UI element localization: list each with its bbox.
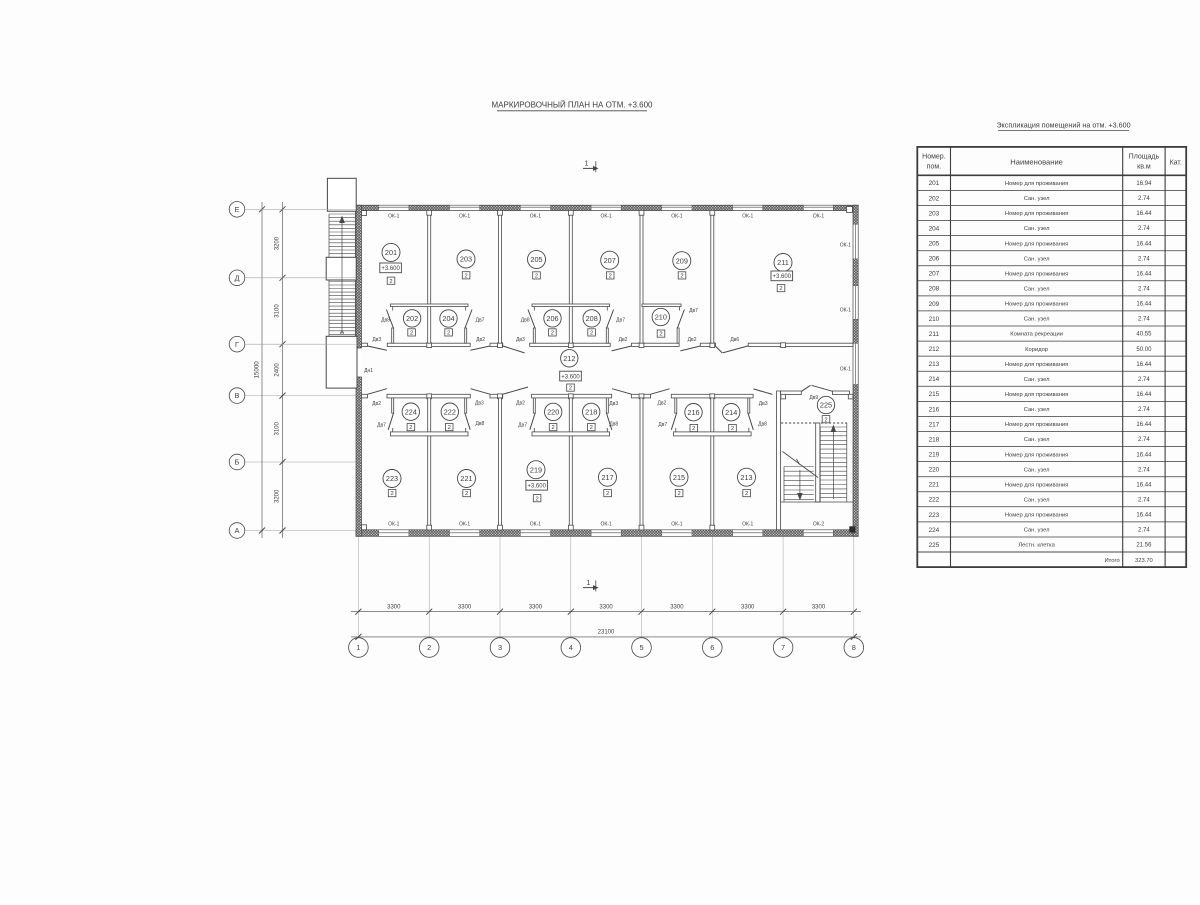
svg-text:208: 208 — [929, 286, 940, 293]
svg-text:40.55: 40.55 — [1136, 332, 1152, 338]
svg-text:215: 215 — [929, 391, 940, 398]
svg-text:202: 202 — [406, 314, 418, 323]
svg-text:5: 5 — [639, 643, 643, 652]
svg-text:Номер для проживания: Номер для проживания — [1005, 392, 1068, 398]
svg-text:208: 208 — [586, 314, 598, 323]
svg-text:+3.600: +3.600 — [381, 266, 400, 272]
svg-text:2: 2 — [590, 331, 593, 337]
svg-text:3200: 3200 — [275, 489, 281, 503]
svg-text:205: 205 — [530, 255, 542, 264]
svg-text:2.74: 2.74 — [1138, 528, 1150, 534]
svg-text:203: 203 — [929, 210, 940, 217]
svg-text:50.00: 50.00 — [1136, 347, 1152, 353]
svg-text:1: 1 — [356, 643, 360, 652]
svg-text:201: 201 — [385, 248, 397, 257]
svg-text:Комната рекреации: Комната рекреации — [1010, 332, 1063, 338]
svg-text:3300: 3300 — [741, 604, 755, 610]
svg-text:2.74: 2.74 — [1138, 256, 1150, 262]
svg-text:2: 2 — [680, 274, 683, 280]
svg-text:2: 2 — [410, 331, 413, 337]
svg-text:Коридор: Коридор — [1025, 347, 1048, 353]
svg-text:Сан. узел: Сан. узел — [1024, 528, 1050, 534]
svg-text:16.44: 16.44 — [1136, 513, 1152, 519]
svg-text:3100: 3100 — [275, 421, 281, 435]
svg-text:16.44: 16.44 — [1136, 211, 1152, 217]
svg-text:Дв8: Дв8 — [609, 422, 618, 428]
svg-text:2: 2 — [609, 274, 612, 280]
svg-text:ОК-1: ОК-1 — [742, 214, 753, 220]
svg-text:221: 221 — [929, 482, 940, 489]
svg-text:3300: 3300 — [387, 604, 401, 610]
svg-text:+3.600: +3.600 — [527, 484, 546, 490]
svg-text:2: 2 — [824, 417, 827, 423]
svg-text:16.44: 16.44 — [1136, 241, 1152, 247]
svg-text:2.74: 2.74 — [1138, 196, 1150, 202]
svg-text:+3.600: +3.600 — [561, 374, 580, 380]
svg-text:16.44: 16.44 — [1136, 452, 1152, 458]
svg-text:1: 1 — [585, 161, 589, 168]
svg-text:223: 223 — [929, 512, 940, 519]
svg-text:В: В — [235, 391, 240, 400]
svg-text:А: А — [235, 526, 240, 535]
svg-text:7: 7 — [781, 643, 785, 652]
svg-text:205: 205 — [929, 241, 940, 248]
svg-text:2400: 2400 — [275, 363, 281, 377]
svg-text:Итого: Итого — [1104, 558, 1119, 564]
svg-text:ОК-1: ОК-1 — [742, 522, 753, 528]
svg-text:222: 222 — [929, 497, 940, 504]
svg-text:ОК-1: ОК-1 — [671, 214, 682, 220]
svg-text:2: 2 — [569, 386, 572, 392]
svg-text:Наименование: Наименование — [1010, 158, 1063, 167]
svg-text:225: 225 — [820, 401, 832, 410]
svg-text:Кат.: Кат. — [1170, 160, 1182, 167]
svg-text:2: 2 — [535, 274, 538, 280]
svg-text:ОК-1: ОК-1 — [600, 522, 611, 528]
svg-text:220: 220 — [929, 467, 940, 474]
svg-text:Сан. узел: Сан. узел — [1024, 317, 1050, 323]
svg-text:ОК-1: ОК-1 — [813, 214, 824, 220]
svg-text:203: 203 — [460, 255, 472, 264]
svg-text:3300: 3300 — [458, 604, 472, 610]
svg-text:212: 212 — [929, 346, 940, 353]
svg-text:Сан. узел: Сан. узел — [1024, 498, 1050, 504]
svg-text:Дв3: Дв3 — [759, 401, 768, 407]
svg-text:Номер.: Номер. — [922, 154, 946, 161]
svg-text:ОК-1: ОК-1 — [840, 308, 851, 314]
svg-text:2: 2 — [745, 491, 748, 497]
svg-text:Сан. узел: Сан. узел — [1024, 287, 1050, 293]
svg-text:201: 201 — [929, 180, 940, 187]
svg-text:206: 206 — [546, 314, 558, 323]
svg-text:Дв2: Дв2 — [516, 400, 525, 406]
svg-text:209: 209 — [929, 301, 940, 308]
svg-text:2: 2 — [606, 491, 609, 497]
svg-text:220: 220 — [547, 408, 559, 417]
svg-text:Номер для проживания: Номер для проживания — [1005, 452, 1068, 458]
svg-text:МАРКИРОВОЧНЫЙ ПЛАН НА ОТМ. +3.: МАРКИРОВОЧНЫЙ ПЛАН НА ОТМ. +3.600 — [492, 101, 654, 110]
svg-text:Дв2: Дв2 — [688, 337, 697, 343]
svg-text:16.44: 16.44 — [1136, 272, 1152, 278]
svg-text:2.74: 2.74 — [1138, 377, 1150, 383]
svg-text:16.44: 16.44 — [1136, 422, 1152, 428]
svg-text:2.74: 2.74 — [1138, 226, 1150, 232]
svg-text:ОК-1: ОК-1 — [388, 522, 399, 528]
svg-text:Номер для проживания: Номер для проживания — [1005, 482, 1068, 488]
svg-text:Номер для проживания: Номер для проживания — [1005, 181, 1068, 187]
svg-text:Сан. узел: Сан. узел — [1024, 226, 1050, 232]
svg-text:207: 207 — [604, 256, 616, 265]
svg-text:2.74: 2.74 — [1138, 317, 1150, 323]
svg-text:ОК-2: ОК-2 — [813, 522, 824, 528]
svg-text:202: 202 — [929, 195, 940, 202]
svg-text:215: 215 — [673, 473, 685, 482]
svg-text:Дв7: Дв7 — [518, 422, 527, 428]
svg-text:2: 2 — [590, 425, 593, 431]
svg-text:212: 212 — [563, 354, 575, 363]
svg-text:2: 2 — [677, 491, 680, 497]
svg-text:217: 217 — [929, 421, 940, 428]
svg-text:Дв7: Дв7 — [689, 308, 698, 314]
svg-text:2: 2 — [465, 491, 468, 497]
svg-text:3200: 3200 — [275, 236, 281, 250]
svg-text:16.94: 16.94 — [1136, 181, 1152, 187]
svg-text:Дв7: Дв7 — [476, 318, 485, 324]
svg-text:Д: Д — [235, 273, 240, 282]
svg-text:ОК-1: ОК-1 — [459, 522, 470, 528]
svg-text:Дв9: Дв9 — [809, 395, 818, 401]
svg-text:207: 207 — [929, 271, 940, 278]
svg-text:ОК-1: ОК-1 — [530, 522, 541, 528]
svg-text:3300: 3300 — [812, 604, 826, 610]
svg-text:213: 213 — [740, 473, 752, 482]
svg-text:3100: 3100 — [275, 304, 281, 318]
svg-text:224: 224 — [405, 407, 417, 416]
svg-text:кв.м: кв.м — [1137, 164, 1151, 171]
svg-text:210: 210 — [655, 313, 667, 322]
svg-text:2: 2 — [464, 273, 467, 279]
svg-text:Дн1: Дн1 — [364, 368, 373, 374]
svg-text:Сан. узел: Сан. узел — [1024, 437, 1050, 443]
svg-text:16.44: 16.44 — [1136, 302, 1152, 308]
svg-text:2.74: 2.74 — [1138, 498, 1150, 504]
svg-text:Г: Г — [235, 340, 239, 349]
svg-text:3300: 3300 — [529, 604, 543, 610]
svg-text:Номер для проживания: Номер для проживания — [1005, 211, 1068, 217]
svg-text:Номер для проживания: Номер для проживания — [1005, 272, 1068, 278]
svg-text:Экспликация помещений на отм.: Экспликация помещений на отм. +3.600 — [996, 121, 1130, 130]
svg-text:Площадь: Площадь — [1129, 154, 1160, 161]
svg-text:225: 225 — [929, 542, 940, 549]
svg-text:214: 214 — [929, 376, 940, 383]
svg-text:2: 2 — [448, 425, 451, 431]
svg-text:2: 2 — [659, 332, 662, 338]
svg-text:216: 216 — [929, 406, 940, 413]
svg-text:Дв8: Дв8 — [475, 421, 484, 427]
svg-text:Дв7: Дв7 — [616, 318, 625, 324]
svg-text:Сан. узел: Сан. узел — [1024, 377, 1050, 383]
svg-text:204: 204 — [929, 225, 940, 232]
svg-text:2: 2 — [779, 286, 782, 292]
svg-text:Дв8: Дв8 — [381, 318, 390, 324]
svg-text:323.70: 323.70 — [1135, 558, 1153, 564]
svg-text:Е: Е — [235, 205, 240, 214]
svg-text:пом.: пом. — [927, 164, 941, 171]
svg-text:Дв2: Дв2 — [476, 337, 485, 343]
svg-text:Дв2: Дв2 — [657, 400, 666, 406]
svg-text:224: 224 — [929, 527, 940, 534]
svg-text:Номер для проживания: Номер для проживания — [1005, 302, 1068, 308]
svg-text:Дв3: Дв3 — [609, 401, 618, 407]
svg-text:209: 209 — [676, 256, 688, 265]
svg-text:217: 217 — [601, 473, 613, 482]
svg-text:Дв8: Дв8 — [521, 318, 530, 324]
svg-text:ОК-1: ОК-1 — [459, 214, 470, 220]
svg-text:21.56: 21.56 — [1136, 543, 1152, 549]
svg-text:ОК-1: ОК-1 — [600, 214, 611, 220]
svg-text:223: 223 — [386, 474, 398, 483]
svg-text:16.44: 16.44 — [1136, 392, 1152, 398]
svg-text:221: 221 — [460, 474, 472, 483]
svg-text:ОК-1: ОК-1 — [671, 522, 682, 528]
svg-text:Сан. узел: Сан. узел — [1024, 256, 1050, 262]
svg-text:Дв2: Дв2 — [372, 401, 381, 407]
svg-text:3300: 3300 — [670, 604, 684, 610]
svg-text:Лестн. клетка: Лестн. клетка — [1018, 543, 1055, 549]
svg-text:210: 210 — [929, 316, 940, 323]
svg-text:ОК-1: ОК-1 — [840, 242, 851, 248]
svg-text:211: 211 — [777, 258, 789, 267]
svg-text:219: 219 — [530, 465, 542, 474]
svg-text:2: 2 — [427, 643, 431, 652]
svg-text:2: 2 — [409, 425, 412, 431]
svg-text:15000: 15000 — [254, 361, 261, 379]
svg-text:3: 3 — [498, 643, 502, 652]
svg-text:2.74: 2.74 — [1138, 437, 1150, 443]
svg-text:2.74: 2.74 — [1138, 467, 1150, 473]
svg-text:Дв3: Дв3 — [475, 400, 484, 406]
svg-text:8: 8 — [852, 643, 856, 652]
svg-text:216: 216 — [687, 408, 699, 417]
svg-text:2: 2 — [551, 331, 554, 337]
svg-text:2.74: 2.74 — [1138, 407, 1150, 413]
svg-text:ОК-1: ОК-1 — [530, 214, 541, 220]
svg-text:2: 2 — [390, 491, 393, 497]
svg-text:+3.600: +3.600 — [773, 274, 792, 280]
svg-text:23100: 23100 — [598, 630, 615, 636]
svg-text:Б: Б — [235, 458, 240, 467]
svg-text:218: 218 — [585, 408, 597, 417]
svg-text:Сан. узел: Сан. узел — [1024, 407, 1050, 413]
svg-text:6: 6 — [710, 643, 714, 652]
svg-text:ОК-1: ОК-1 — [840, 366, 851, 372]
svg-text:2: 2 — [731, 426, 734, 432]
svg-text:16.44: 16.44 — [1136, 362, 1152, 368]
svg-text:2: 2 — [447, 331, 450, 337]
svg-text:222: 222 — [444, 407, 456, 416]
svg-text:2.74: 2.74 — [1138, 287, 1150, 293]
svg-text:206: 206 — [929, 256, 940, 263]
svg-text:Дв3: Дв3 — [516, 337, 525, 343]
svg-text:214: 214 — [725, 408, 737, 417]
svg-text:2: 2 — [551, 425, 554, 431]
svg-text:Номер для проживания: Номер для проживания — [1005, 362, 1068, 368]
svg-text:213: 213 — [929, 361, 940, 368]
svg-text:2: 2 — [389, 279, 392, 285]
svg-text:Сан. узел: Сан. узел — [1024, 467, 1050, 473]
svg-text:Номер для проживания: Номер для проживания — [1005, 422, 1068, 428]
svg-text:16.44: 16.44 — [1136, 482, 1152, 488]
svg-text:2: 2 — [692, 426, 695, 432]
svg-text:Сан. узел: Сан. узел — [1024, 196, 1050, 202]
svg-text:Дв8: Дв8 — [758, 422, 767, 428]
svg-text:219: 219 — [929, 452, 940, 459]
svg-text:4: 4 — [569, 643, 573, 652]
svg-text:Номер для проживания: Номер для проживания — [1005, 513, 1068, 519]
svg-text:1: 1 — [587, 580, 591, 587]
svg-text:218: 218 — [929, 436, 940, 443]
svg-text:Дв3: Дв3 — [372, 337, 381, 343]
svg-text:211: 211 — [929, 331, 940, 338]
svg-text:2: 2 — [535, 496, 538, 502]
svg-text:Номер для проживания: Номер для проживания — [1005, 241, 1068, 247]
svg-text:Дв7: Дв7 — [377, 422, 386, 428]
svg-text:Дв2: Дв2 — [619, 337, 628, 343]
svg-text:204: 204 — [442, 314, 454, 323]
svg-text:Дв7: Дв7 — [658, 422, 667, 428]
svg-text:ОК-1: ОК-1 — [388, 214, 399, 220]
svg-text:Дв6: Дв6 — [730, 337, 739, 343]
svg-text:3300: 3300 — [599, 604, 613, 610]
